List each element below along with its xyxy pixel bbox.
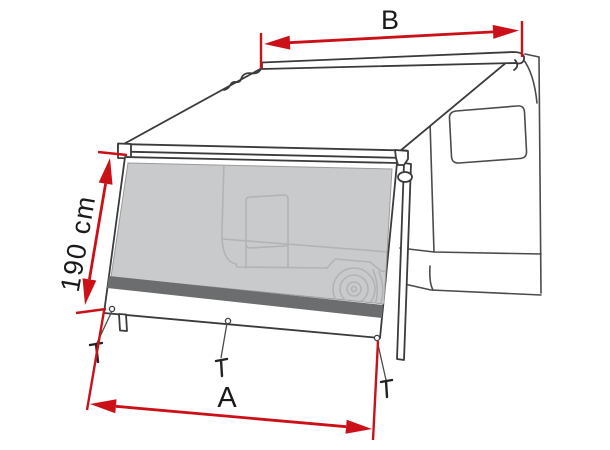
arrowhead-up-icon bbox=[99, 158, 113, 185]
dimension-a-label: A bbox=[217, 382, 237, 414]
van-skirt-curve bbox=[430, 266, 433, 290]
arrowhead-right-icon bbox=[346, 420, 373, 434]
guy-line-middle bbox=[221, 323, 227, 358]
support-leg-right bbox=[397, 163, 411, 360]
arrowhead-left-icon bbox=[264, 36, 290, 50]
van-skirt-top-line bbox=[400, 248, 541, 254]
van-bottom-edge bbox=[400, 283, 541, 295]
arrowhead-right-icon bbox=[493, 25, 519, 39]
dimension-height-tick-bottom bbox=[76, 309, 106, 313]
arrowhead-left-icon bbox=[90, 399, 117, 413]
rail-knob bbox=[398, 172, 412, 182]
van-rear-pillar-curve bbox=[523, 59, 537, 103]
awning bbox=[122, 52, 524, 151]
support-leg-left bbox=[119, 314, 127, 331]
eyelet-middle bbox=[225, 318, 230, 323]
dimension-a-ext-left bbox=[87, 311, 104, 410]
eyelet-left bbox=[109, 306, 114, 311]
peg-middle bbox=[216, 359, 227, 376]
dimension-b-label: B bbox=[381, 5, 399, 35]
dimension-a-ext-right bbox=[373, 341, 378, 440]
van-window bbox=[449, 106, 526, 163]
van-panel-edge bbox=[430, 122, 434, 252]
van-rear-edge bbox=[539, 57, 541, 293]
eyelet-right bbox=[374, 335, 379, 340]
awning-fabric bbox=[122, 57, 513, 151]
van-roof-line bbox=[525, 54, 539, 57]
awning-dimension-diagram: B 190 cm A bbox=[0, 0, 610, 450]
peg-right bbox=[381, 380, 392, 397]
sun-blocker-panel bbox=[104, 157, 397, 341]
